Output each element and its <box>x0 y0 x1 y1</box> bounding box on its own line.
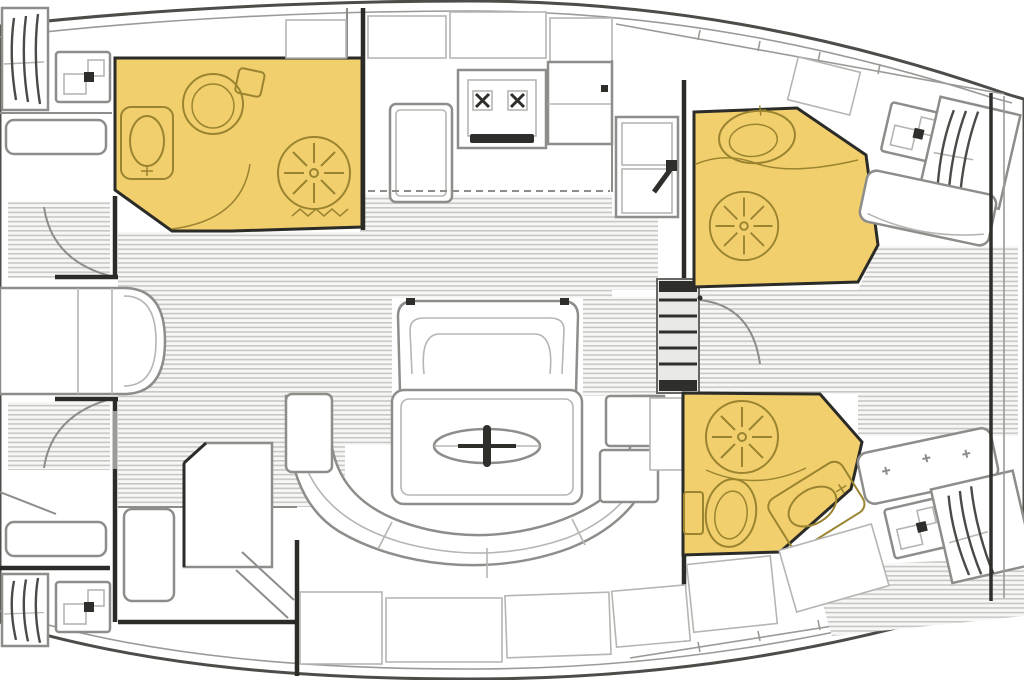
counter <box>548 62 612 144</box>
floor-plan-canvas <box>0 0 1024 680</box>
seat <box>124 509 174 601</box>
door-hinge <box>601 85 608 92</box>
vanity-sink-port <box>56 582 110 632</box>
forward-bench <box>398 298 578 392</box>
seat-starboard <box>6 120 106 154</box>
settee-arm-left <box>286 394 332 472</box>
folding-table <box>392 390 582 504</box>
locker <box>650 398 682 470</box>
island-berth <box>0 288 165 394</box>
two-burner-stove <box>458 70 546 148</box>
seat-port <box>6 522 106 556</box>
vanity-sink-starboard <box>56 52 110 102</box>
overhead-locker <box>286 20 346 58</box>
galley-double-sink <box>616 117 678 217</box>
overhead-locker <box>550 18 612 62</box>
cabinet <box>184 443 272 567</box>
overhead-locker <box>450 12 546 58</box>
refrigerator-counter <box>390 104 452 202</box>
overhead-locker <box>368 16 446 58</box>
steps <box>657 279 699 393</box>
head-forward <box>115 58 362 231</box>
door-hinge <box>698 296 703 301</box>
yacht-floor-plan <box>0 0 1024 680</box>
locker <box>687 556 778 632</box>
